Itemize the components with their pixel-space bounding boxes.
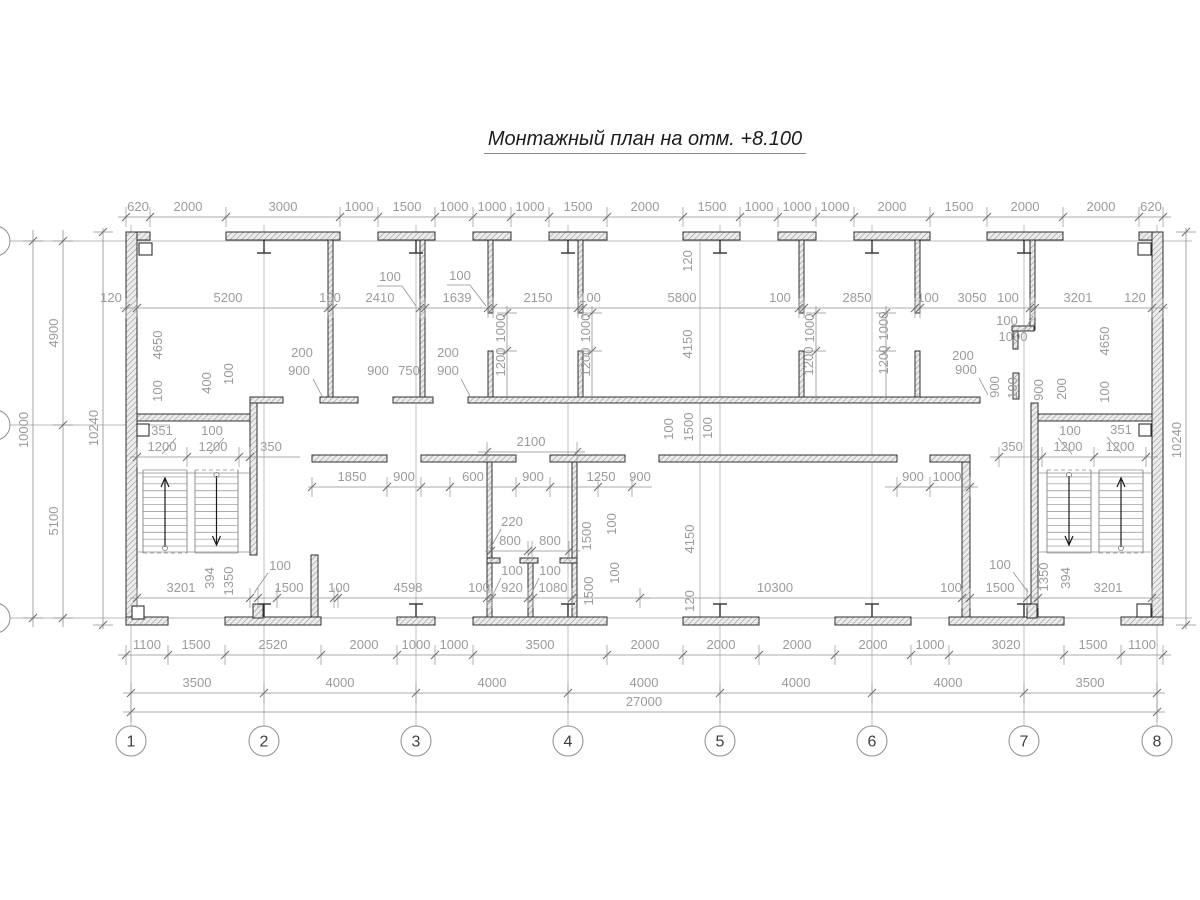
dim-label: 1200 (148, 439, 177, 454)
dim-label: 100 (607, 562, 622, 584)
dim-label: 4000 (478, 675, 507, 690)
dim-label: 900 (437, 363, 459, 378)
wall-segment (126, 232, 137, 625)
dim-label: 3500 (1076, 675, 1105, 690)
dim-label: 1500 (945, 199, 974, 214)
dim-label: 1500 (275, 580, 304, 595)
corner-column (137, 424, 149, 436)
dim-label: 900 (629, 469, 651, 484)
dim-label: 2000 (1087, 199, 1116, 214)
wall-segment (473, 232, 511, 240)
wall-segment (1121, 617, 1163, 625)
wall-segment (250, 403, 257, 555)
wall-segment (550, 455, 625, 462)
dim-label: 2150 (524, 290, 553, 305)
wall-segment (328, 240, 333, 398)
dim-label: 100 (269, 558, 291, 573)
wall-segment (421, 455, 516, 462)
dim-label: 4150 (680, 330, 695, 359)
dim-label: 100 (579, 290, 601, 305)
dim-label: 200 (952, 348, 974, 363)
wall-segment (378, 232, 435, 240)
dim-label: 220 (501, 514, 523, 529)
wall-segment (799, 240, 804, 313)
leader-line (461, 379, 470, 396)
dim-label: 2000 (1011, 199, 1040, 214)
dim-label: 2850 (843, 290, 872, 305)
dim-label: 1000 (578, 314, 593, 343)
dim-label: 4000 (782, 675, 811, 690)
dim-label: 2000 (174, 199, 203, 214)
dim-label: 100 (319, 290, 341, 305)
dim-label: 900 (987, 376, 1002, 398)
dim-label: 3201 (1094, 580, 1123, 595)
dim-label: 100 (201, 423, 223, 438)
leader-line (1013, 572, 1028, 592)
dim-label: 350 (260, 439, 282, 454)
dim-label: 100 (449, 268, 471, 283)
dim-label: 200 (437, 345, 459, 360)
wall-segment (659, 455, 897, 462)
dim-label: 100 (150, 380, 165, 402)
axis-bubble-label: 4 (564, 734, 573, 751)
dim-label: 1000 (478, 199, 507, 214)
wall-segment (572, 462, 577, 617)
dim-label: 1000 (345, 199, 374, 214)
wall-segment (312, 455, 387, 462)
axis-bubble (0, 410, 10, 440)
dim-label: 3500 (526, 637, 555, 652)
wall-segment (1152, 232, 1163, 625)
corner-column (1137, 604, 1151, 617)
dim-label: 1100 (133, 637, 161, 652)
wall-segment (778, 232, 816, 240)
leader-line (313, 379, 322, 396)
dim-label: 4000 (630, 675, 659, 690)
dim-label: 4650 (1097, 327, 1112, 356)
dim-label: 100 (917, 290, 939, 305)
dim-label: 200 (291, 345, 313, 360)
dim-label: 1200 (493, 348, 508, 377)
dim-label: 620 (1140, 199, 1162, 214)
axis-bubble-label: 6 (868, 734, 877, 751)
dim-label: 1000 (802, 314, 817, 343)
dim-label: 100 (940, 580, 962, 595)
dim-label: 100 (700, 417, 715, 439)
dim-label: 3050 (958, 290, 987, 305)
dim-label: 1500 (681, 413, 696, 442)
dim-label: 3201 (1064, 290, 1093, 305)
dim-label: 2000 (859, 637, 888, 652)
wall-segment (683, 232, 740, 240)
wall-segment (835, 617, 911, 625)
wall-segment (683, 617, 759, 625)
dim-label: 100 (661, 418, 676, 440)
wall-segment (915, 351, 920, 398)
dim-label: 1000 (933, 469, 962, 484)
dim-label: 4598 (394, 580, 423, 595)
dim-label: 2520 (259, 637, 288, 652)
dim-label: 2410 (366, 290, 395, 305)
corner-column (1139, 424, 1151, 436)
dim-label: 900 (1031, 379, 1046, 401)
dim-label: 1500 (579, 522, 594, 551)
dim-label: 100 (221, 363, 236, 385)
wall-segment (930, 455, 970, 462)
wall-segment (250, 397, 283, 403)
dim-label: 1350 (221, 567, 236, 596)
dim-label: 1000 (516, 199, 545, 214)
dim-label: 27000 (626, 694, 662, 709)
dim-label: 5800 (668, 290, 697, 305)
dim-label: 1080 (539, 580, 568, 595)
dim-label: 100 (769, 290, 791, 305)
dim-label: 1000 (440, 637, 469, 652)
dim-label: 4150 (682, 525, 697, 554)
dim-label: 800 (499, 533, 521, 548)
wall-segment (397, 617, 435, 625)
dim-label: 1000 (493, 314, 508, 343)
leader-line (492, 578, 501, 597)
dim-label: 100 (1005, 377, 1020, 399)
dim-label: 2000 (350, 637, 379, 652)
dim-label: 1200 (1106, 439, 1135, 454)
wall-segment (137, 414, 250, 421)
dim-label: 100 (989, 557, 1011, 572)
dim-label: 200 (1054, 378, 1069, 400)
dim-label: 1500 (393, 199, 422, 214)
dim-label: 620 (127, 199, 149, 214)
wall-segment (987, 232, 1063, 240)
dim-label: 1639 (443, 290, 472, 305)
dim-label: 800 (539, 533, 561, 548)
dim-label: 1000 (876, 312, 891, 341)
dim-label: 1200 (199, 439, 228, 454)
dim-label: 120 (1124, 290, 1146, 305)
axis-bubble (0, 603, 10, 633)
dim-label: 10240 (86, 410, 101, 446)
dim-label: 120 (100, 290, 122, 305)
dim-label: 600 (462, 469, 484, 484)
wall-segment (549, 232, 607, 240)
dim-label: 2000 (631, 637, 660, 652)
dim-label: 1250 (587, 469, 616, 484)
dim-label: 920 (501, 580, 523, 595)
dim-label: 1200 (578, 348, 593, 377)
dim-label: 100 (1097, 381, 1112, 403)
corner-column (132, 606, 144, 619)
dim-label: 351 (151, 423, 173, 438)
dim-label: 100 (539, 563, 561, 578)
dim-label: 2000 (878, 199, 907, 214)
floor-plan-canvas: 6202000300010001500100010001000150020001… (0, 0, 1200, 900)
wall-segment (320, 397, 358, 403)
dim-label: 3500 (183, 675, 212, 690)
dim-label: 100 (328, 580, 350, 595)
dim-label: 100 (604, 513, 619, 535)
wall-segment (854, 232, 930, 240)
drawing-sheet: { "title": {"text": "Монтажный план на о… (0, 0, 1200, 900)
dim-label: 2100 (517, 434, 546, 449)
dim-label: 10300 (757, 580, 793, 595)
wall-segment (226, 232, 340, 240)
dim-label: 1000 (783, 199, 812, 214)
axis-bubble-label: 2 (260, 734, 269, 751)
wall-segment (473, 617, 607, 625)
wall-segment (528, 560, 533, 617)
wall-segment (1027, 604, 1037, 618)
wall-segment (311, 555, 318, 617)
dim-label: 100 (379, 269, 401, 284)
dim-label: 120 (682, 590, 697, 612)
dim-label: 100 (996, 313, 1018, 328)
dim-label: 1200 (801, 347, 816, 376)
leader-line (254, 573, 268, 593)
dim-label: 1350 (1036, 563, 1051, 592)
dim-label: 350 (1001, 439, 1023, 454)
dim-label: 1000 (916, 637, 945, 652)
axis-bubble-label: 1 (127, 734, 136, 751)
dim-label: 1000 (402, 637, 431, 652)
dim-label: 4650 (150, 331, 165, 360)
wall-segment (962, 462, 970, 617)
dim-label: 750 (398, 363, 420, 378)
dim-label: 4000 (934, 675, 963, 690)
dim-label: 100 (501, 563, 523, 578)
dim-label: 4900 (46, 319, 61, 348)
dim-label: 100 (1059, 423, 1081, 438)
dim-label: 1000 (821, 199, 850, 214)
dim-label: 120 (680, 250, 695, 272)
dim-label: 100 (997, 290, 1019, 305)
axis-bubble-label: 3 (412, 734, 421, 751)
dim-label: 900 (367, 363, 389, 378)
dim-label: 1000 (745, 199, 774, 214)
wall-segment (560, 558, 577, 563)
dim-label: 1000 (999, 329, 1028, 344)
dim-label: 351 (1110, 422, 1132, 437)
wall-segment (949, 617, 1064, 625)
dim-label: 1500 (698, 199, 727, 214)
dim-label: 3201 (167, 580, 196, 595)
dim-label: 3020 (992, 637, 1021, 652)
dim-label: 100 (468, 580, 490, 595)
dim-label: 10240 (1169, 422, 1184, 458)
wall-segment (1038, 414, 1152, 421)
dim-label: 5200 (214, 290, 243, 305)
axis-bubble-label: 7 (1020, 734, 1029, 751)
dim-label: 1200 (876, 346, 891, 375)
dim-label: 394 (1058, 567, 1073, 589)
dim-label: 10000 (16, 412, 31, 448)
dim-label: 900 (902, 469, 924, 484)
dim-label: 900 (955, 362, 977, 377)
dim-label: 1000 (440, 199, 469, 214)
wall-segment (487, 558, 500, 563)
dim-label: 1850 (338, 469, 367, 484)
dim-label: 900 (522, 469, 544, 484)
dim-label: 900 (393, 469, 415, 484)
dim-label: 1500 (581, 577, 596, 606)
dim-label: 5100 (46, 507, 61, 536)
wall-segment (468, 397, 980, 403)
dim-label: 1200 (1054, 439, 1083, 454)
axis-bubble (0, 226, 10, 256)
dim-label: 3000 (269, 199, 298, 214)
corner-column (139, 243, 152, 255)
dim-label: 1500 (1079, 637, 1108, 652)
wall-segment (393, 397, 433, 403)
dim-label: 1500 (564, 199, 593, 214)
dim-label: 1500 (986, 580, 1015, 595)
corner-column (1138, 243, 1151, 255)
dim-label: 1100 (1128, 637, 1156, 652)
wall-segment (420, 240, 425, 398)
dim-label: 400 (199, 372, 214, 394)
dim-label: 1500 (182, 637, 211, 652)
dim-label: 394 (202, 567, 217, 589)
wall-segment (488, 240, 493, 313)
axis-bubble-label: 5 (716, 734, 725, 751)
dim-label: 2000 (707, 637, 736, 652)
dim-label: 4000 (326, 675, 355, 690)
axis-bubble-label: 8 (1153, 734, 1162, 751)
dim-label: 2000 (783, 637, 812, 652)
dim-label: 2000 (631, 199, 660, 214)
dim-label: 900 (288, 363, 310, 378)
wall-segment (225, 617, 321, 625)
dimension-labels: 6202000300010001500100010001000150020001… (16, 199, 1184, 709)
